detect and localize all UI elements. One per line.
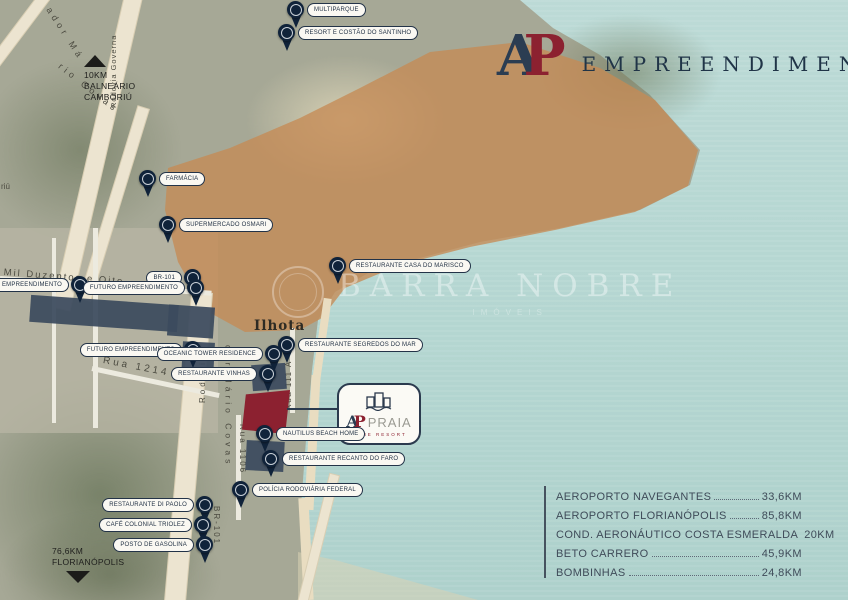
pin-label: MULTIPARQUE — [307, 3, 366, 17]
distances-panel: AEROPORTO NAVEGANTES33,6KM AEROPORTO FLO… — [556, 484, 802, 579]
distance-row: COND. AERONÁUTICO COSTA ESMERALDA20KM — [556, 522, 802, 541]
marker-place: CAMBORIÚ — [84, 92, 135, 103]
direction-marker-south: 76,6KM FLORIANÓPOLIS — [52, 546, 124, 583]
pin-label: CAFÉ COLONIAL TRIOLEZ — [99, 518, 192, 532]
pin-marker-icon — [159, 216, 176, 233]
pin-marker-icon — [187, 279, 204, 296]
pin-marker-icon — [194, 516, 211, 533]
distance-label: AEROPORTO FLORIANÓPOLIS — [556, 510, 727, 522]
map-canvas: ador Má rio Covas Rodovia Governa Rodovi… — [0, 0, 848, 600]
pin-label: RESTAURANTE RECANTO DO FARO — [282, 452, 405, 466]
pin-label: NAUTILUS BEACH HOME — [276, 427, 365, 441]
marker-place: BALNEÁRIO — [84, 81, 135, 92]
brand-letter-p: P — [523, 23, 565, 89]
pin-label: FUTURO EMPREENDIMENTO — [0, 278, 69, 292]
brand-monogram: AP — [497, 28, 566, 84]
pin-label: POLÍCIA RODOVIÁRIA FEDERAL — [252, 483, 363, 497]
distance-row: AEROPORTO NAVEGANTES33,6KM — [556, 484, 802, 503]
brand-logo: AP EMPREENDIMENTOS — [497, 28, 848, 84]
pin-marker-icon — [139, 170, 156, 187]
pin-label: FARMÁCIA — [159, 172, 205, 186]
pin-marker-icon — [262, 450, 279, 467]
pin-label: RESORT E COSTÃO DO SANTINHO — [298, 26, 418, 40]
distance-label: BETO CARRERO — [556, 548, 649, 560]
distance-label: COND. AERONÁUTICO COSTA ESMERALDA — [556, 529, 798, 541]
distance-row: BETO CARRERO45,9KM — [556, 541, 802, 560]
pin-label: RESTAURANTE VINHAS — [171, 367, 257, 381]
distance-value: 45,9KM — [762, 548, 802, 560]
leader-dots — [629, 575, 759, 576]
pin-marker-icon — [329, 257, 346, 274]
north-arrow-icon — [84, 55, 106, 67]
pin-label: RESTAURANTE SEGREDOS DO MAR — [298, 338, 423, 352]
pin-label: SUPERMERCADO OSMARI — [179, 218, 273, 232]
pin-label: RESTAURANTE CASA DO MARISCO — [349, 259, 471, 273]
distance-value: 33,6KM — [762, 491, 802, 503]
marker-distance: 10KM — [84, 70, 135, 81]
distance-value: 85,8KM — [762, 510, 802, 522]
distance-value: 24,8KM — [762, 567, 802, 579]
pin-marker-icon — [232, 481, 249, 498]
distance-label: AEROPORTO NAVEGANTES — [556, 491, 711, 503]
pin-marker-icon — [196, 536, 213, 553]
marker-distance: 76,6KM — [52, 546, 124, 557]
pin-label: RESTAURANTE DI PAOLO — [102, 498, 194, 512]
pin-marker-icon — [259, 365, 276, 382]
leader-dots — [730, 518, 759, 519]
marker-place: FLORIANÓPOLIS — [52, 557, 124, 568]
pin-marker-icon — [265, 345, 282, 362]
distance-row: AEROPORTO FLORIANÓPOLIS85,8KM — [556, 503, 802, 522]
direction-marker-north: 10KM BALNEÁRIO CAMBORIÚ — [84, 55, 135, 103]
south-arrow-icon — [66, 571, 90, 583]
distances-divider — [544, 486, 546, 578]
pin-marker-icon — [278, 24, 295, 41]
leader-dots — [652, 556, 759, 557]
pin-marker-icon — [196, 496, 213, 513]
pin-label: FUTURO EMPREENDIMENTO — [83, 281, 185, 295]
distance-row: BOMBINHAS24,8KM — [556, 560, 802, 579]
distance-label: BOMBINHAS — [556, 567, 626, 579]
pin-label: OCEANIC TOWER RESIDENCE — [157, 347, 263, 361]
pin-marker-icon — [256, 425, 273, 442]
pin-marker-icon — [287, 1, 304, 18]
pin-label: POSTO DE GASOLINA — [113, 538, 194, 552]
distance-value: 20KM — [804, 529, 834, 541]
brand-name: EMPREENDIMENTOS — [582, 52, 848, 76]
leader-dots — [714, 499, 758, 500]
